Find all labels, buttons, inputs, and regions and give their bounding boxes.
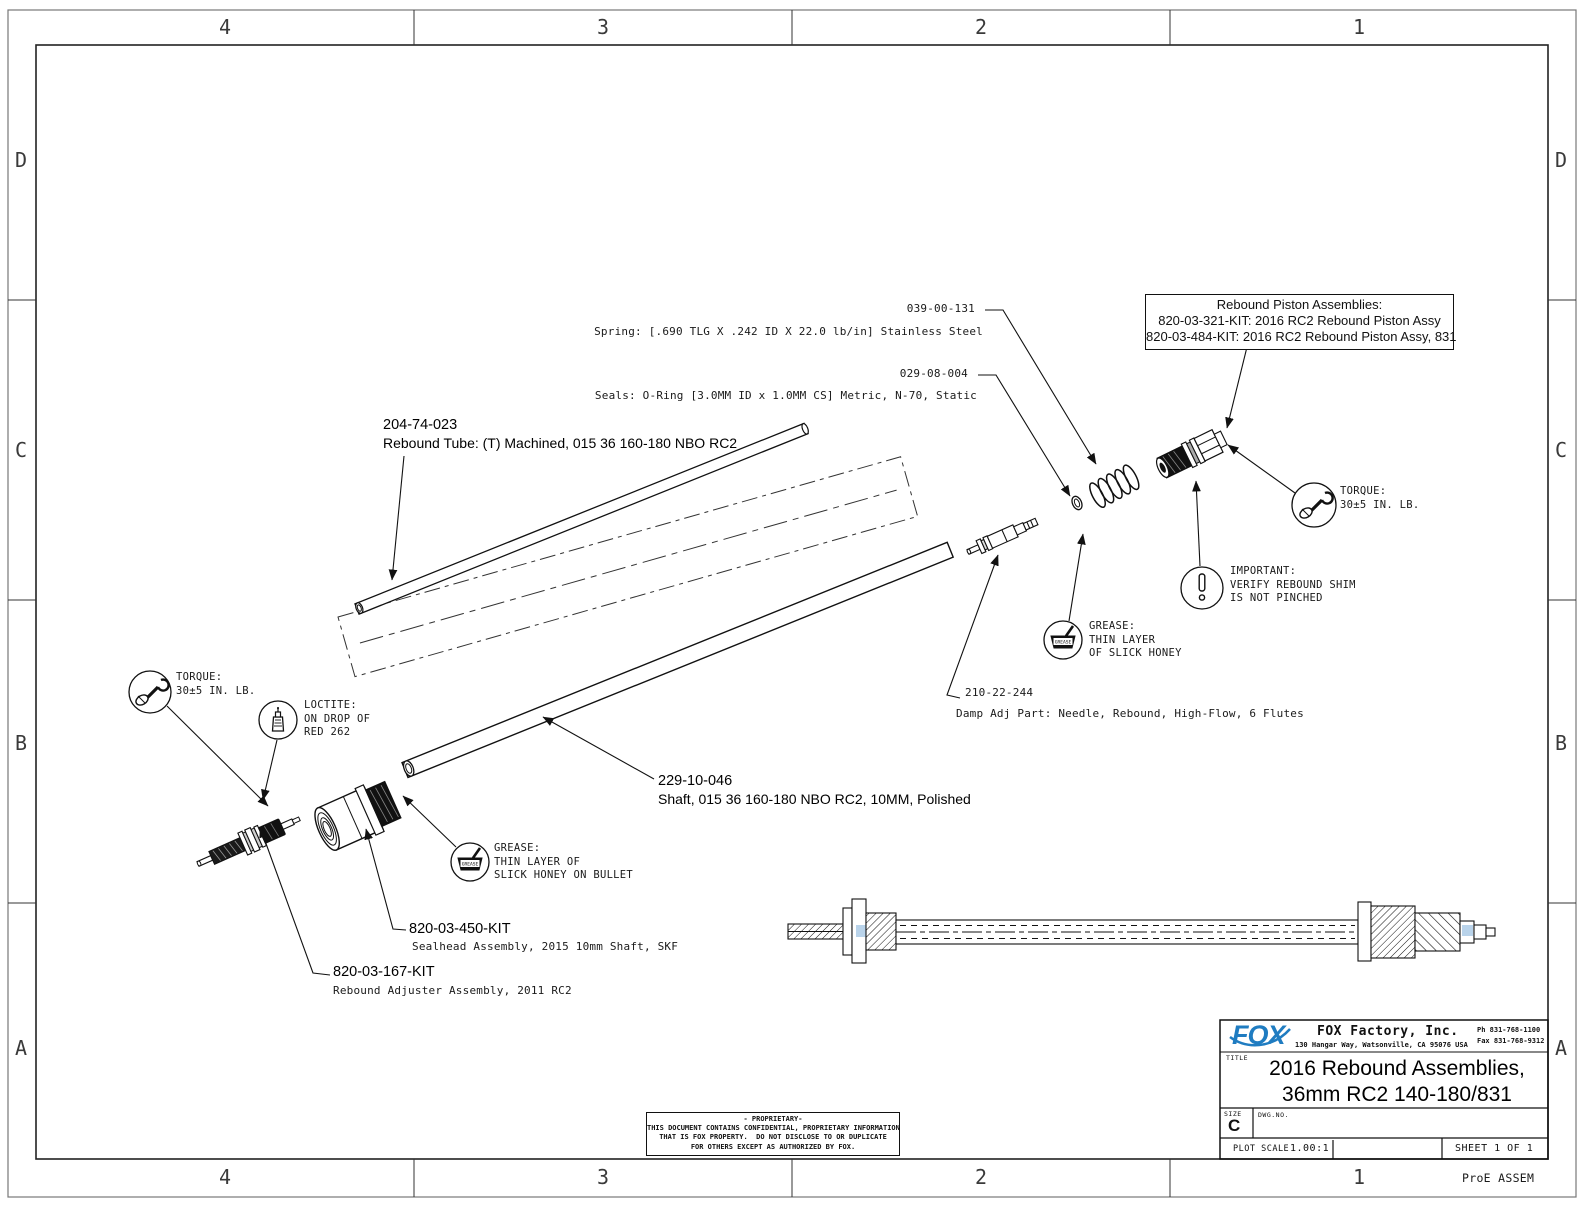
needle-part — [965, 515, 1040, 558]
grease-note-right: GREASE: THIN LAYER OF SLICK HONEY — [1089, 620, 1182, 661]
zone-bottom-3: 3 — [597, 1165, 609, 1189]
piston-part — [1153, 426, 1230, 481]
important-icon — [1181, 567, 1223, 609]
piston-box-title: Rebound Piston Assemblies: — [1217, 297, 1382, 312]
shaft-part-number: 229-10-046 — [658, 773, 732, 790]
drawing-sheet: GREASE GREASE — [0, 0, 1584, 1224]
assembled-view — [788, 899, 1495, 963]
adjuster-part — [193, 808, 305, 875]
oring-part — [1070, 495, 1084, 511]
needle-description: Damp Adj Part: Needle, Rebound, High-Flo… — [956, 707, 1304, 721]
zone-top-4: 4 — [219, 15, 231, 39]
grease-note-left: GREASE: THIN LAYER OF SLICK HONEY ON BUL… — [494, 842, 633, 883]
zone-right-d: D — [1555, 148, 1567, 172]
grease-icon-label: GREASE — [462, 862, 479, 868]
zone-left-c: C — [15, 438, 27, 462]
sealhead-part-number: 820-03-450-KIT — [409, 921, 511, 938]
adjuster-part-number: 820-03-167-KIT — [333, 964, 435, 981]
grease-icon-left: GREASE — [451, 843, 489, 881]
company-address: 130 Hangar Way, Watsonville, CA 95076 US… — [1295, 1041, 1468, 1049]
zone-bottom-2: 2 — [975, 1165, 987, 1189]
zone-right-a: A — [1555, 1036, 1567, 1060]
proprietary-notice: - PROPRIETARY- THIS DOCUMENT CONTAINS CO… — [646, 1112, 900, 1156]
torque-icon-left — [129, 671, 171, 713]
plot-scale-label: PLOT SCALE — [1233, 1144, 1289, 1154]
zone-left-a: A — [15, 1036, 27, 1060]
zone-left-d: D — [15, 148, 27, 172]
proe-assem-note: ProE ASSEM — [1462, 1172, 1534, 1186]
company-name: FOX Factory, Inc. — [1317, 1024, 1459, 1039]
dwg-no-label: DWG.NO. — [1258, 1111, 1289, 1119]
zone-top-2: 2 — [975, 15, 987, 39]
company-phone: Ph 831-768-1100 — [1477, 1026, 1540, 1034]
spring-part-number: 039-00-131 — [907, 302, 975, 316]
fox-logo: FOX — [1230, 1020, 1290, 1050]
piston-box-line2: 820-03-484-KIT: 2016 RC2 Rebound Piston … — [1146, 329, 1457, 344]
needle-part-number: 210-22-244 — [965, 686, 1033, 700]
important-note: IMPORTANT: VERIFY REBOUND SHIM IS NOT PI… — [1230, 565, 1356, 606]
company-fax: Fax 831-768-9312 — [1477, 1037, 1544, 1045]
plot-scale-value: 1.00:1 — [1290, 1143, 1329, 1154]
title-label: TITLE — [1226, 1054, 1248, 1062]
zone-right-b: B — [1555, 731, 1567, 755]
zone-bottom-1: 1 — [1353, 1165, 1365, 1189]
seals-description: Seals: O-Ring [3.0MM ID x 1.0MM CS] Metr… — [595, 389, 977, 403]
rebound-piston-assemblies-box: Rebound Piston Assemblies: 820-03-321-KI… — [1145, 294, 1454, 350]
zone-right-c: C — [1555, 438, 1567, 462]
zone-bottom-4: 4 — [219, 1165, 231, 1189]
spring-description: Spring: [.690 TLG X .242 ID X 22.0 lb/in… — [594, 325, 983, 339]
rebound-tube-part-number: 204-74-023 — [383, 417, 457, 434]
drawing-title: 2016 Rebound Assemblies, 36mm RC2 140-18… — [1252, 1056, 1542, 1108]
torque-note-left: TORQUE: 30±5 IN. LB. — [176, 671, 255, 698]
spring-part — [1087, 463, 1142, 509]
shaft-part — [402, 542, 954, 777]
torque-icon-right — [1292, 483, 1336, 527]
sealhead-description: Sealhead Assembly, 2015 10mm Shaft, SKF — [412, 940, 678, 954]
phantom-outline — [338, 457, 918, 677]
rebound-tube-description: Rebound Tube: (T) Machined, 015 36 160-1… — [383, 435, 737, 452]
zone-top-1: 1 — [1353, 15, 1365, 39]
seals-part-number: 029-08-004 — [900, 367, 968, 381]
adjuster-description: Rebound Adjuster Assembly, 2011 RC2 — [333, 984, 572, 998]
zone-top-3: 3 — [597, 15, 609, 39]
sheet-number: SHEET 1 OF 1 — [1455, 1143, 1533, 1154]
loctite-icon — [259, 701, 297, 739]
torque-note-right: TORQUE: 30±5 IN. LB. — [1340, 485, 1419, 512]
shaft-description: Shaft, 015 36 160-180 NBO RC2, 10MM, Pol… — [658, 791, 971, 808]
sealhead-part — [309, 776, 403, 855]
grease-icon-label: GREASE — [1055, 640, 1072, 646]
zone-left-b: B — [15, 731, 27, 755]
piston-box-line1: 820-03-321-KIT: 2016 RC2 Rebound Piston … — [1158, 313, 1441, 328]
loctite-note: LOCTITE: ON DROP OF RED 262 — [304, 699, 370, 740]
size-value: C — [1228, 1116, 1240, 1136]
grease-icon-right: GREASE — [1044, 621, 1082, 659]
